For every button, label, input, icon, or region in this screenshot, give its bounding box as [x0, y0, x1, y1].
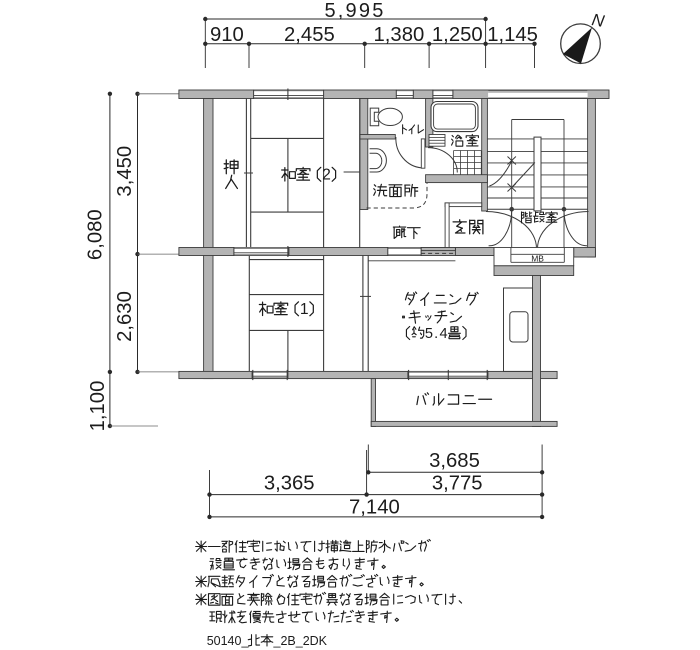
svg-text:MB: MB: [531, 253, 544, 263]
svg-text:3,450: 3,450: [114, 146, 136, 197]
svg-text:2: 2: [322, 167, 331, 184]
svg-text:2,455: 2,455: [284, 24, 335, 46]
svg-text:4: 4: [439, 326, 447, 342]
svg-text:5,995: 5,995: [324, 0, 385, 22]
svg-text:1,100: 1,100: [87, 381, 109, 432]
svg-text:3,685: 3,685: [429, 450, 480, 472]
svg-text:1,380: 1,380: [374, 24, 425, 46]
svg-text:7,140: 7,140: [349, 497, 400, 519]
svg-text:3,775: 3,775: [432, 473, 483, 495]
svg-text:910: 910: [210, 24, 244, 46]
svg-text:1,145: 1,145: [487, 24, 538, 46]
svg-text:.: .: [434, 326, 438, 342]
svg-text:50140_: 50140_: [207, 634, 250, 648]
svg-text:1: 1: [300, 301, 309, 318]
svg-text:1,250: 1,250: [432, 24, 483, 46]
svg-text:3,365: 3,365: [264, 473, 315, 495]
svg-text:_2B_2DK: _2B_2DK: [273, 634, 328, 648]
svg-text:2,630: 2,630: [114, 291, 136, 342]
svg-text:6,080: 6,080: [85, 209, 107, 260]
svg-text:5: 5: [425, 326, 433, 342]
